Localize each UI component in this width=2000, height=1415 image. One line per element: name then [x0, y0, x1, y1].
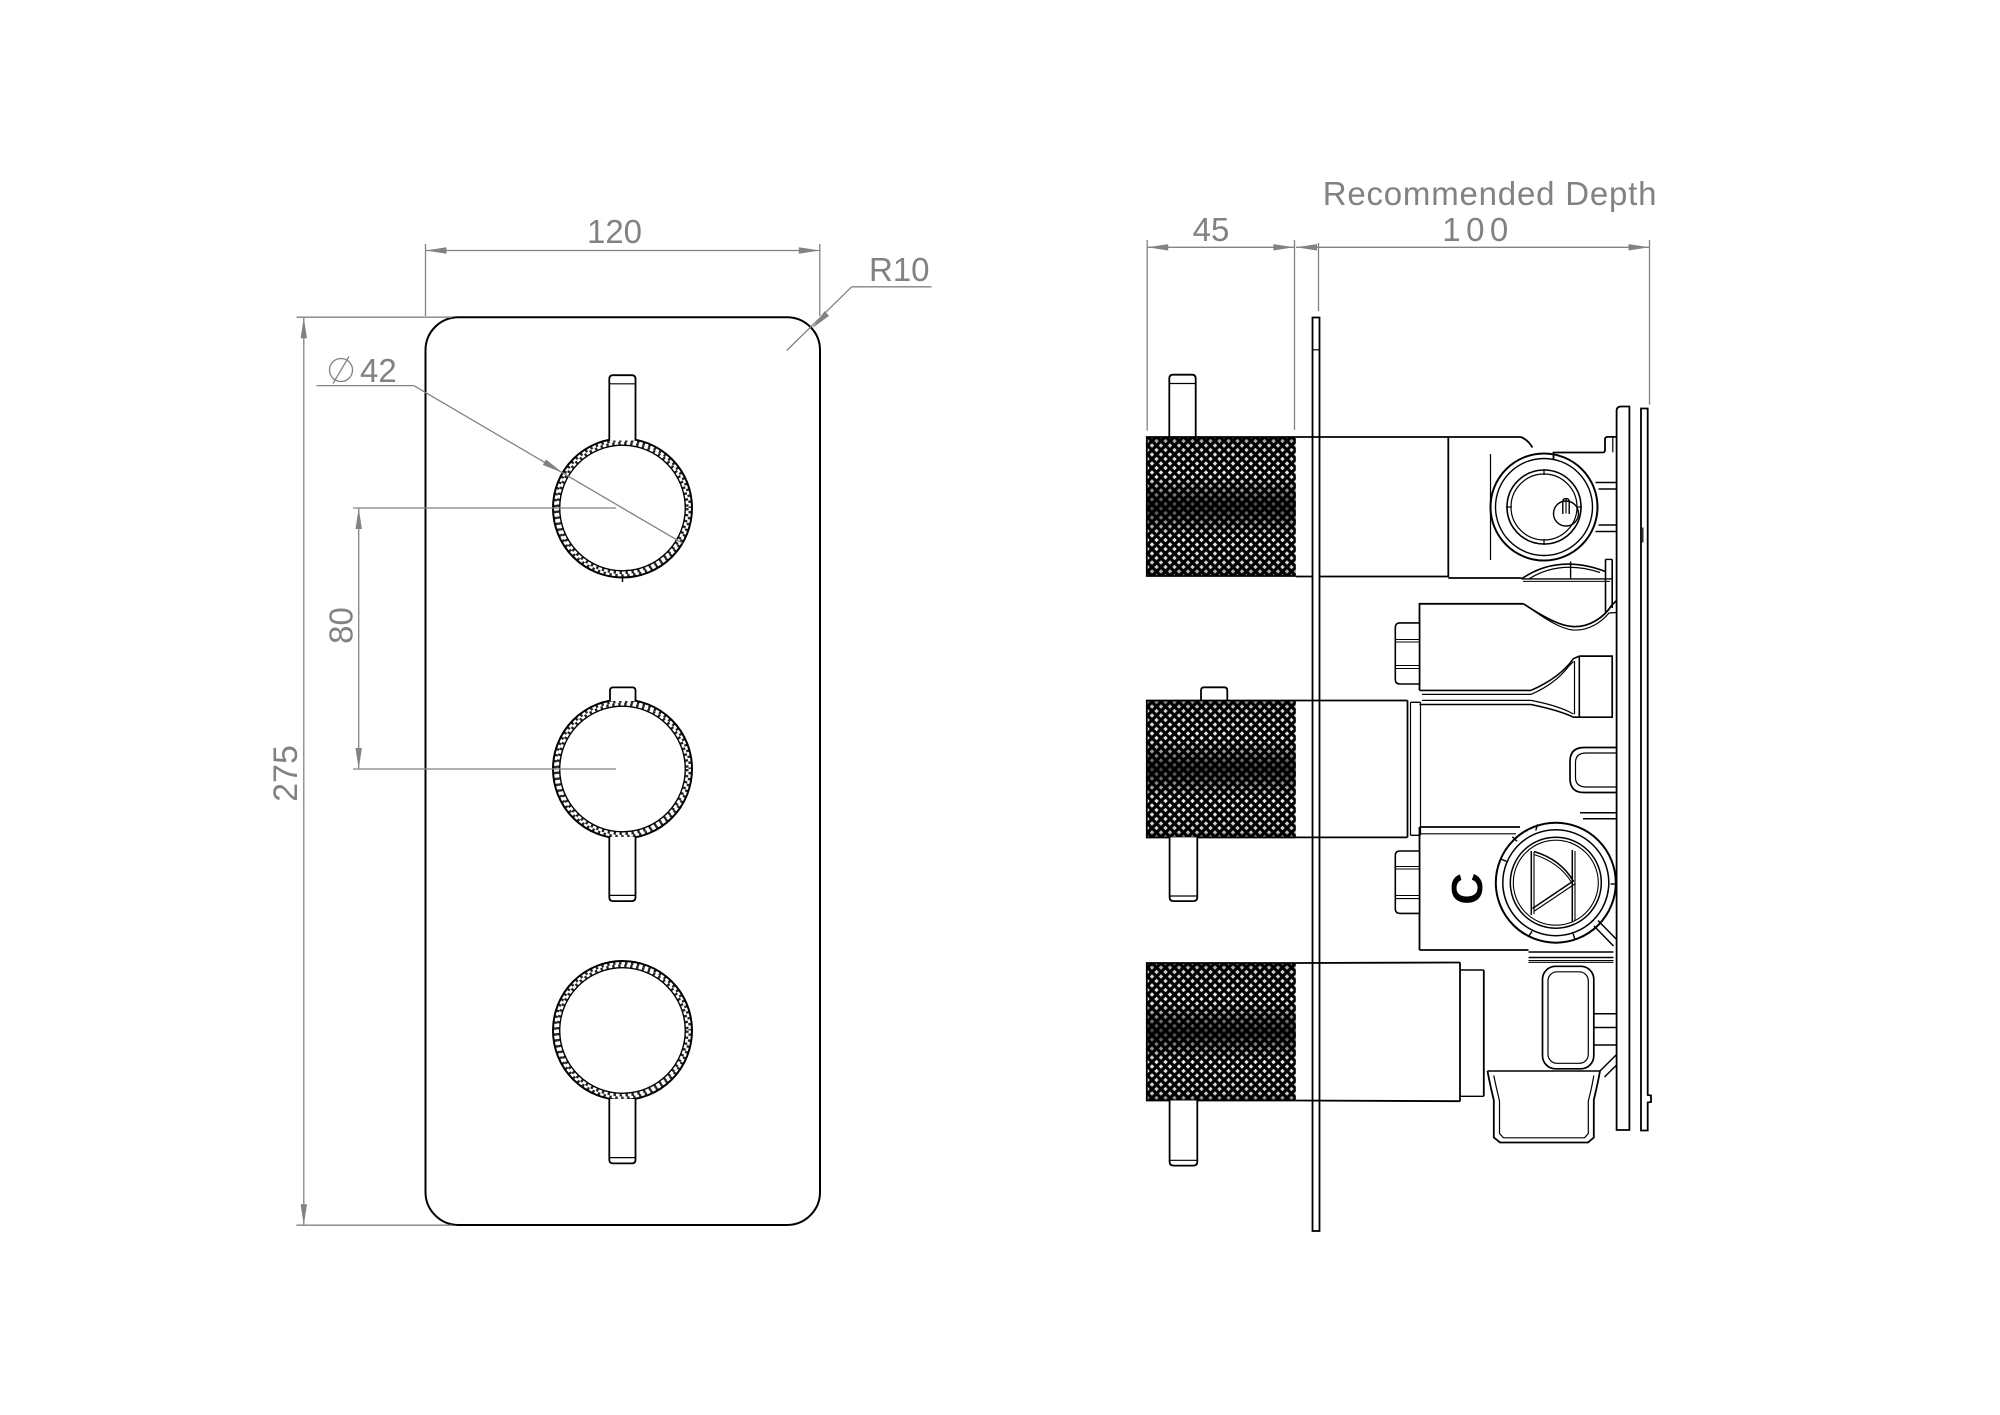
- svg-text:100: 100: [1442, 211, 1514, 248]
- svg-text:45: 45: [1193, 211, 1230, 248]
- svg-text:42: 42: [360, 352, 397, 389]
- svg-text:Recommended Depth: Recommended Depth: [1323, 175, 1658, 212]
- svg-text:R10: R10: [869, 251, 930, 288]
- svg-text:80: 80: [323, 607, 360, 644]
- svg-text:120: 120: [587, 213, 642, 250]
- svg-text:275: 275: [267, 745, 305, 802]
- svg-text:C: C: [1443, 873, 1492, 905]
